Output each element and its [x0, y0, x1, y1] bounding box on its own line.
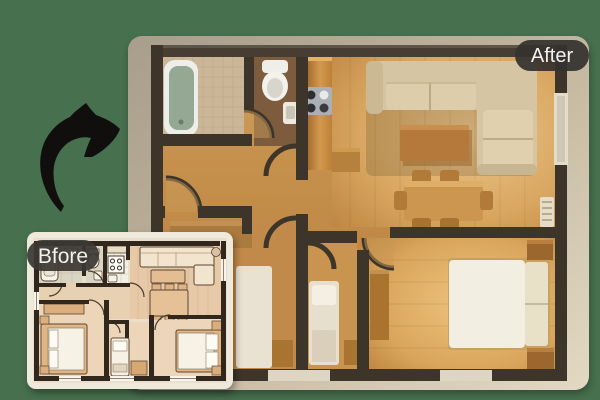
svg-text:After: After	[531, 45, 574, 67]
svg-text:Bfore: Bfore	[38, 245, 88, 268]
